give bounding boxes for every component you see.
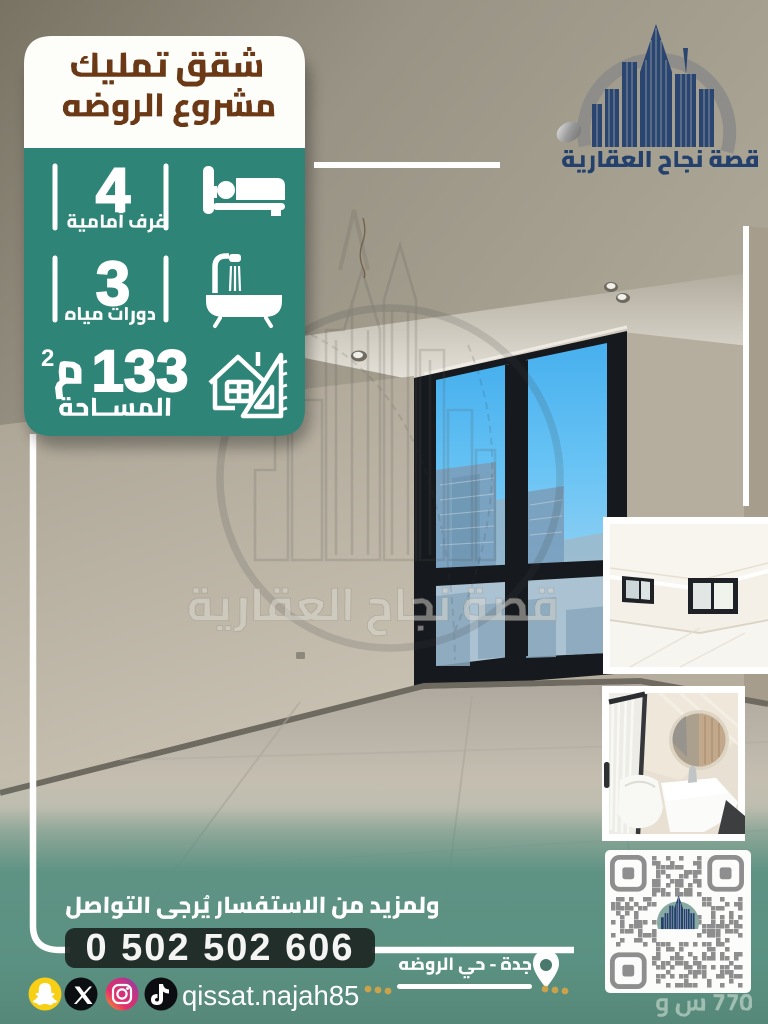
svg-text:133: 133	[92, 339, 189, 404]
svg-text:0 502 502 606: 0 502 502 606	[85, 927, 354, 969]
svg-text:2: 2	[41, 345, 54, 372]
svg-text:qissat.najah85: qissat.najah85	[182, 980, 359, 1011]
